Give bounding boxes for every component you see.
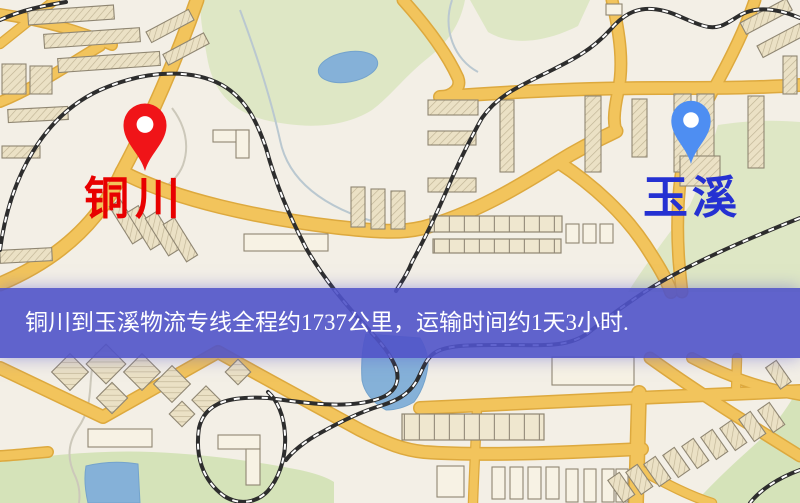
map-canvas[interactable]: 铜川 玉溪 铜川到玉溪物流专线全程约1737公里，运输时间约1天3小时. (0, 0, 800, 503)
destination-pin-icon[interactable] (669, 100, 713, 166)
destination-city-label: 玉溪 (643, 176, 741, 221)
route-info-banner: 铜川到玉溪物流专线全程约1737公里，运输时间约1天3小时. (0, 288, 800, 358)
origin-city-label: 铜川 (84, 177, 186, 222)
origin-pin-icon[interactable] (121, 103, 169, 173)
map-tiles (0, 0, 800, 503)
lake-southwest (85, 462, 140, 503)
route-info-text: 铜川到玉溪物流专线全程约1737公里，运输时间约1天3小时. (0, 288, 800, 358)
